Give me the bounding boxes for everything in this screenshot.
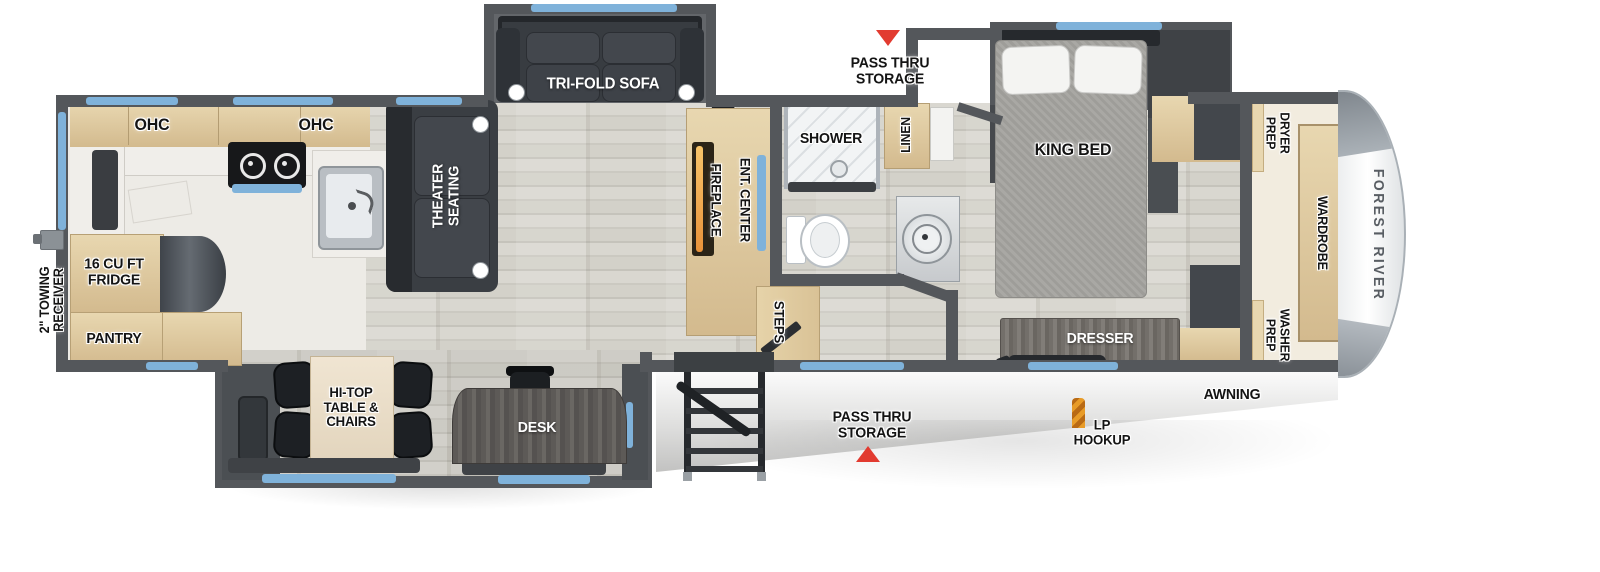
ohc-label: OHC (299, 116, 334, 134)
pass-thru-front-wall (906, 28, 1002, 40)
theater-cupholder (472, 116, 489, 133)
sofa-cushion (602, 32, 676, 64)
towing-receiver-pin (33, 234, 42, 244)
king-slide-window (1056, 22, 1162, 30)
wardrobe-label: WARDROBE (1315, 196, 1329, 270)
hi-top-chair (388, 411, 433, 460)
towing-receiver-hitch (40, 230, 64, 250)
desk-label: DESK (518, 420, 556, 436)
linen-shelf (930, 107, 954, 161)
linen-label: LINEN (899, 117, 913, 153)
front-cap-marker-light (1390, 120, 1400, 130)
ground-shadow-front (700, 420, 1340, 490)
toilet-seat (810, 222, 840, 258)
pass-thru-top-arrow (876, 30, 900, 46)
king-bed-pillow (1001, 45, 1071, 95)
tall-cabinet (92, 150, 118, 230)
bedroom-chest-top-dark (1194, 100, 1244, 160)
bedroom-chest-bottom-dark (1190, 265, 1242, 331)
sofa-cupholder (508, 84, 525, 101)
ent-center-label: ENT. CENTER (738, 158, 753, 242)
dryer-prep-label: DRYER PREP (1264, 112, 1291, 153)
fireplace-flame (696, 146, 703, 252)
ent-center-tv (757, 155, 766, 251)
window (396, 97, 462, 105)
theater-seating-label: THEATER SEATING (430, 164, 461, 228)
bottom-slide-right-end-window (626, 402, 633, 448)
entry-landing (674, 352, 774, 372)
slide-window (262, 474, 396, 483)
window-entry (800, 362, 904, 370)
entry-steps-foot (683, 472, 692, 481)
brand-label: FOREST RIVER (1370, 169, 1386, 301)
window-bedroom (1028, 362, 1118, 370)
front-cap-marker-light (1390, 344, 1400, 354)
entry-steps-foot (757, 472, 766, 481)
king-bed-label: KING BED (1035, 141, 1112, 159)
stove-burner (240, 153, 266, 179)
tri-fold-sofa-label: TRI-FOLD SOFA (547, 77, 660, 94)
slide-kick-trim (228, 458, 420, 473)
bedroom-front-wall (1240, 95, 1252, 372)
bath-wall-right (946, 290, 958, 372)
rv-floorplan: OHC OHC 16 CU FT FRIDGE PANTRY 2" TOWING… (0, 0, 1600, 572)
stove-burner-center (248, 161, 253, 166)
vanity-faucet (922, 234, 928, 240)
sofa-cupholder (678, 84, 695, 101)
stove-burner-center (282, 161, 287, 166)
pantry-label: PANTRY (86, 331, 141, 347)
theater-cupholder (472, 262, 489, 279)
towing-receiver-label: 2" TOWING RECEIVER (38, 267, 66, 334)
sofa-cushion (526, 32, 600, 64)
awning-label: AWNING (1204, 387, 1261, 403)
dresser-label: DRESSER (1067, 331, 1134, 347)
pass-thru-bottom-arrow (856, 446, 880, 462)
window (146, 362, 198, 370)
bath-wall-bottom (770, 274, 904, 286)
washer-prep-label: WASHER PREP (1264, 309, 1291, 362)
steps-label: STEPS (772, 301, 787, 343)
window (86, 97, 178, 105)
king-bed-pillow (1073, 45, 1143, 95)
ohc-divider (218, 105, 219, 145)
bath-wall-left (770, 103, 782, 283)
fireplace-label: FIREPLACE (709, 164, 724, 237)
washer-prep-panel (1252, 300, 1264, 368)
entry-steps-rung (686, 466, 763, 472)
bottom-wall-rear (56, 360, 228, 372)
pass-thru-bottom-label: PASS THRU STORAGE (833, 409, 912, 440)
lp-hookup-label: LP HOOKUP (1074, 417, 1131, 446)
fridge-label: 16 CU FT FRIDGE (84, 256, 144, 287)
window-rear (58, 112, 66, 230)
ohc-label: OHC (135, 116, 170, 134)
top-wall-front (1188, 92, 1340, 104)
window (233, 97, 333, 105)
sofa-slide-window (531, 4, 677, 12)
shower-drain (830, 160, 848, 178)
entry-steps-rung (686, 448, 763, 454)
stove-burner (274, 153, 300, 179)
hi-top-table-label: HI-TOP TABLE & CHAIRS (324, 385, 379, 429)
theater-seating-backrest (386, 100, 412, 292)
slide-window (498, 475, 590, 484)
kitchen-base-cabinet (162, 312, 242, 366)
dryer-prep-panel (1252, 100, 1264, 172)
stove-accent (232, 184, 302, 193)
bottom-slide-left-end-window (238, 396, 268, 462)
hi-top-chair (388, 361, 433, 410)
pass-thru-top-label: PASS THRU STORAGE (851, 55, 930, 86)
shower-label: SHOWER (800, 131, 862, 147)
ohc-divider (128, 105, 129, 145)
top-wall-mid (706, 95, 918, 107)
entry-steps-rung (686, 428, 763, 434)
bedroom-chest-bottom-base (1180, 328, 1242, 362)
fridge-front (160, 236, 226, 312)
shower-threshold (788, 182, 876, 192)
